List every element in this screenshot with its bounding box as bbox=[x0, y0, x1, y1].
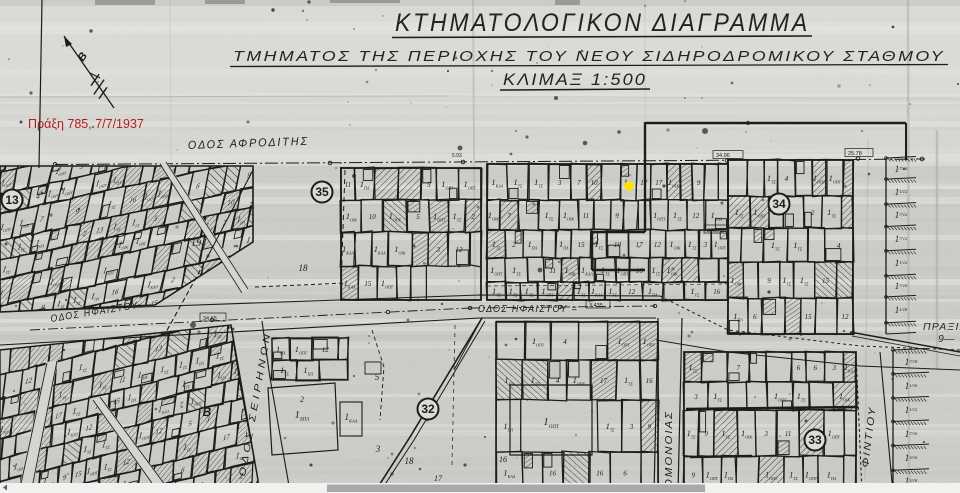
svg-text:11: 11 bbox=[345, 181, 351, 189]
svg-text:3: 3 bbox=[435, 246, 440, 254]
svg-text:17: 17 bbox=[600, 377, 608, 385]
svg-text:19: 19 bbox=[191, 238, 201, 249]
svg-text:17: 17 bbox=[434, 474, 443, 483]
svg-text:25.78: 25.78 bbox=[848, 151, 862, 157]
svg-text:ΤΜΗΜΑΤΟΣ ΤΗΣ ΠΕΡΙΟΧΗΣ ΤΟΥ ΝΕΟΥ: ΤΜΗΜΑΤΟΣ ΤΗΣ ΠΕΡΙΟΧΗΣ ΤΟΥ ΝΕΟΥ ΣΙΔΗΡΟΔΡΟ… bbox=[233, 49, 945, 65]
svg-text:5.93: 5.93 bbox=[452, 153, 462, 159]
svg-text:3: 3 bbox=[693, 393, 698, 401]
svg-text:18: 18 bbox=[405, 456, 415, 466]
svg-text:4: 4 bbox=[837, 242, 841, 250]
svg-text:ΠΡΑΞΙΣ: ΠΡΑΞΙΣ bbox=[923, 321, 960, 333]
svg-text:9: 9 bbox=[704, 430, 708, 438]
svg-text:5: 5 bbox=[375, 372, 380, 382]
svg-text:4: 4 bbox=[785, 175, 789, 183]
svg-text:16: 16 bbox=[713, 288, 721, 296]
svg-text:2: 2 bbox=[811, 209, 815, 217]
svg-text:32: 32 bbox=[421, 402, 435, 416]
svg-text:3: 3 bbox=[557, 179, 562, 187]
svg-text:10: 10 bbox=[591, 179, 599, 187]
svg-text:9: 9 bbox=[767, 277, 771, 285]
svg-text:ΟΔΟΣ ΗΦΑΙΣΤΟΥ =: ΟΔΟΣ ΗΦΑΙΣΤΟΥ = bbox=[478, 304, 578, 315]
svg-text:2: 2 bbox=[300, 395, 304, 404]
svg-text:15: 15 bbox=[364, 280, 372, 288]
svg-text:12: 12 bbox=[842, 313, 850, 321]
svg-text:16: 16 bbox=[549, 470, 557, 478]
svg-text:4: 4 bbox=[556, 377, 560, 385]
svg-text:12: 12 bbox=[322, 346, 330, 354]
svg-text:15: 15 bbox=[578, 241, 586, 249]
svg-text:7: 7 bbox=[737, 364, 741, 372]
svg-text:6: 6 bbox=[753, 313, 757, 321]
svg-text:15: 15 bbox=[805, 313, 813, 321]
svg-text:2: 2 bbox=[471, 213, 475, 221]
svg-text:2: 2 bbox=[512, 241, 516, 249]
svg-text:9: 9 bbox=[691, 472, 695, 480]
svg-text:4: 4 bbox=[563, 338, 567, 346]
svg-text:12: 12 bbox=[654, 241, 662, 249]
svg-text:16: 16 bbox=[596, 470, 604, 478]
svg-text:35: 35 bbox=[315, 185, 329, 199]
svg-text:11: 11 bbox=[549, 267, 555, 275]
svg-text:33: 33 bbox=[808, 433, 822, 447]
svg-text:17: 17 bbox=[655, 179, 663, 187]
svg-text:10: 10 bbox=[369, 213, 377, 221]
svg-text:3: 3 bbox=[703, 241, 708, 249]
svg-text:34.65: 34.65 bbox=[203, 316, 217, 322]
svg-text:3: 3 bbox=[831, 364, 836, 372]
svg-text:ΟΜΟΝΟΙΑΣ: ΟΜΟΝΟΙΑΣ bbox=[664, 410, 675, 488]
svg-text:B: B bbox=[203, 405, 212, 419]
svg-text:3: 3 bbox=[763, 430, 768, 438]
svg-text:3: 3 bbox=[629, 423, 634, 431]
svg-text:Πράξη 785, 7/7/1937: Πράξη 785, 7/7/1937 bbox=[28, 117, 144, 131]
svg-text:15: 15 bbox=[822, 277, 830, 285]
svg-text:3435: 3435 bbox=[707, 228, 719, 234]
svg-text:16: 16 bbox=[646, 377, 654, 385]
svg-text:ΚΛΙΜΑΞ 1:500: ΚΛΙΜΑΞ 1:500 bbox=[503, 70, 647, 89]
svg-text:6: 6 bbox=[623, 470, 627, 478]
svg-text:3.435: 3.435 bbox=[589, 303, 603, 309]
svg-text:9—: 9— bbox=[938, 333, 955, 345]
svg-text:12: 12 bbox=[628, 288, 636, 296]
svg-text:9: 9 bbox=[615, 212, 619, 220]
svg-text:7: 7 bbox=[577, 179, 581, 187]
svg-text:7: 7 bbox=[507, 212, 511, 220]
svg-text:34.96: 34.96 bbox=[716, 153, 730, 159]
svg-text:5: 5 bbox=[427, 181, 431, 189]
svg-text:34: 34 bbox=[772, 197, 786, 211]
svg-text:5: 5 bbox=[416, 213, 420, 221]
svg-text:17: 17 bbox=[636, 241, 644, 249]
svg-text:16: 16 bbox=[499, 455, 507, 464]
svg-text:12: 12 bbox=[456, 246, 464, 254]
svg-text:10: 10 bbox=[614, 241, 622, 249]
svg-text:ΚΤΗΜΑΤΟΛΟΓΙΚΟΝ ΔΙΑΓΡΑΜΜΑ: ΚΤΗΜΑΤΟΛΟΓΙΚΟΝ ΔΙΑΓΡΑΜΜΑ bbox=[395, 9, 810, 37]
svg-text:13: 13 bbox=[5, 193, 19, 207]
svg-text:9: 9 bbox=[697, 179, 701, 187]
svg-text:9: 9 bbox=[648, 423, 652, 431]
svg-text:3: 3 bbox=[375, 444, 381, 454]
svg-text:12: 12 bbox=[692, 212, 700, 220]
svg-text:6: 6 bbox=[814, 364, 818, 372]
svg-text:11: 11 bbox=[785, 430, 791, 438]
svg-text:18: 18 bbox=[299, 263, 309, 273]
svg-text:6: 6 bbox=[797, 364, 801, 372]
svg-text:11: 11 bbox=[583, 212, 589, 220]
